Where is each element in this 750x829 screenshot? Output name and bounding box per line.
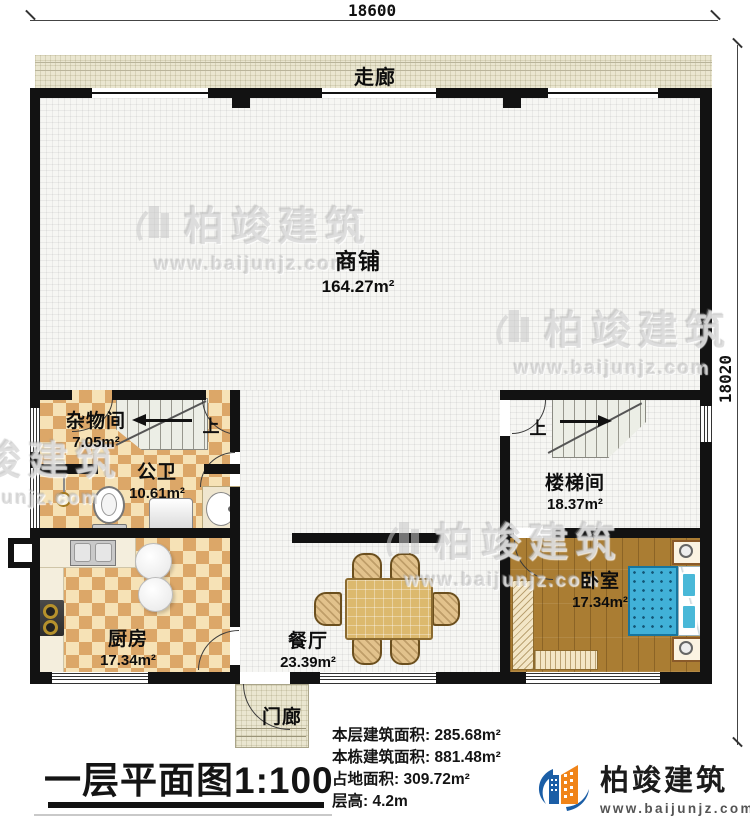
storefront-line: [548, 92, 658, 94]
kitchen-round-fixture: [135, 543, 172, 580]
stat-line-floor-area: 本层建筑面积: 285.68m²: [332, 725, 501, 747]
window: [52, 673, 148, 684]
stove-burner: [43, 604, 58, 619]
window: [320, 673, 436, 684]
stairs-up-arrow: [560, 420, 600, 423]
wall: [208, 88, 322, 98]
room-label-bathroom: 公卫 10.61m²: [129, 457, 185, 502]
brand-url: www.baijunjz.com: [600, 801, 750, 816]
title-rule-thick: [48, 802, 324, 808]
watermark-building-icon: [382, 516, 424, 562]
wall: [112, 390, 206, 400]
brand-logo: 柏竣建筑 www.baijunjz.com: [533, 757, 750, 816]
dimension-tick: [710, 10, 721, 21]
window: [700, 406, 712, 442]
pillow: [681, 572, 697, 598]
bed-mattress: [628, 566, 678, 636]
window: [526, 673, 660, 684]
room-label-dining: 餐厅 23.39m²: [280, 626, 336, 671]
wall: [658, 88, 712, 98]
stairs-up-label: 上: [203, 412, 220, 437]
right-dimension-line: [737, 45, 738, 745]
porch-step-line: [236, 736, 306, 737]
storefront-line: [92, 92, 208, 94]
table-lamp-icon: [679, 641, 693, 655]
dining-chair: [432, 592, 460, 626]
kitchen-round-fixture: [138, 577, 173, 612]
wall: [30, 390, 72, 400]
room-label-stairwell: 楼梯间 18.37m²: [545, 468, 605, 513]
title-rule-thin: [34, 814, 332, 816]
wall: [30, 528, 240, 538]
stairs-up-arrowhead: [132, 414, 146, 426]
room-label-kitchen: 厨房 17.34m²: [100, 624, 156, 669]
flue-box: [8, 538, 38, 568]
stairs-up-label: 上: [530, 414, 547, 439]
stairs-up-arrowhead: [598, 415, 612, 427]
plan-title: 一层平面图1:100: [44, 750, 334, 804]
brand-name: 柏竣建筑: [600, 757, 750, 799]
floor-plan-canvas: 18600 18020: [0, 0, 750, 829]
watermark-building-icon: [132, 200, 174, 246]
brand-building-icon: [533, 760, 591, 814]
wardrobe: [534, 650, 598, 670]
stat-line-storey-height: 层高: 4.2m: [332, 791, 501, 813]
storefront-line: [322, 92, 436, 94]
wall: [290, 672, 320, 684]
wall: [30, 672, 52, 684]
brand-text: 柏竣建筑 www.baijunjz.com: [600, 757, 750, 816]
washing-machine: [149, 498, 193, 532]
wall: [30, 88, 92, 98]
right-dimension-label: 18020: [716, 355, 735, 403]
dining-chair: [352, 638, 382, 665]
stat-line-footprint-area: 占地面积: 309.72m²: [332, 769, 501, 791]
stove-burner: [43, 620, 58, 635]
dining-chair: [352, 553, 382, 580]
stat-line-building-area: 本栋建筑面积: 881.48m²: [332, 747, 501, 769]
wall: [660, 672, 712, 684]
room-label-porch: 门廊: [262, 702, 302, 729]
wall: [230, 390, 240, 452]
top-dimension-label: 18600: [348, 1, 396, 20]
wall: [436, 88, 548, 98]
pillow: [681, 604, 697, 630]
wall: [230, 665, 240, 677]
dimension-tick: [25, 10, 36, 21]
wall-pier: [232, 98, 250, 108]
stairs-up-arrow: [146, 419, 192, 422]
wall: [230, 487, 240, 627]
dining-chair: [314, 592, 342, 626]
room-label-bedroom: 卧室 17.34m²: [572, 566, 628, 611]
kitchen-sink-basin: [95, 543, 112, 562]
room-label-storage: 杂物间 7.05m²: [66, 406, 126, 451]
wall: [148, 672, 240, 684]
dining-chair: [390, 638, 420, 665]
top-dimension-line: [30, 20, 718, 21]
wall: [30, 98, 40, 408]
room-label-corridor: 走廊: [354, 61, 396, 90]
watermark-building-icon: [492, 304, 534, 350]
kitchen-sink-basin: [74, 543, 91, 562]
wall: [204, 464, 240, 474]
wall: [436, 672, 526, 684]
wall: [700, 442, 712, 672]
wardrobe: [512, 580, 534, 670]
wall: [500, 390, 712, 400]
watermark: 柏竣建筑 www.baijunjz.com: [492, 298, 732, 380]
room-label-shop: 商铺 164.27m²: [322, 244, 395, 297]
stats-block: 本层建筑面积: 285.68m² 本栋建筑面积: 881.48m² 占地面积: …: [332, 725, 501, 813]
table-lamp-icon: [679, 544, 693, 558]
wall-pier: [503, 98, 521, 108]
